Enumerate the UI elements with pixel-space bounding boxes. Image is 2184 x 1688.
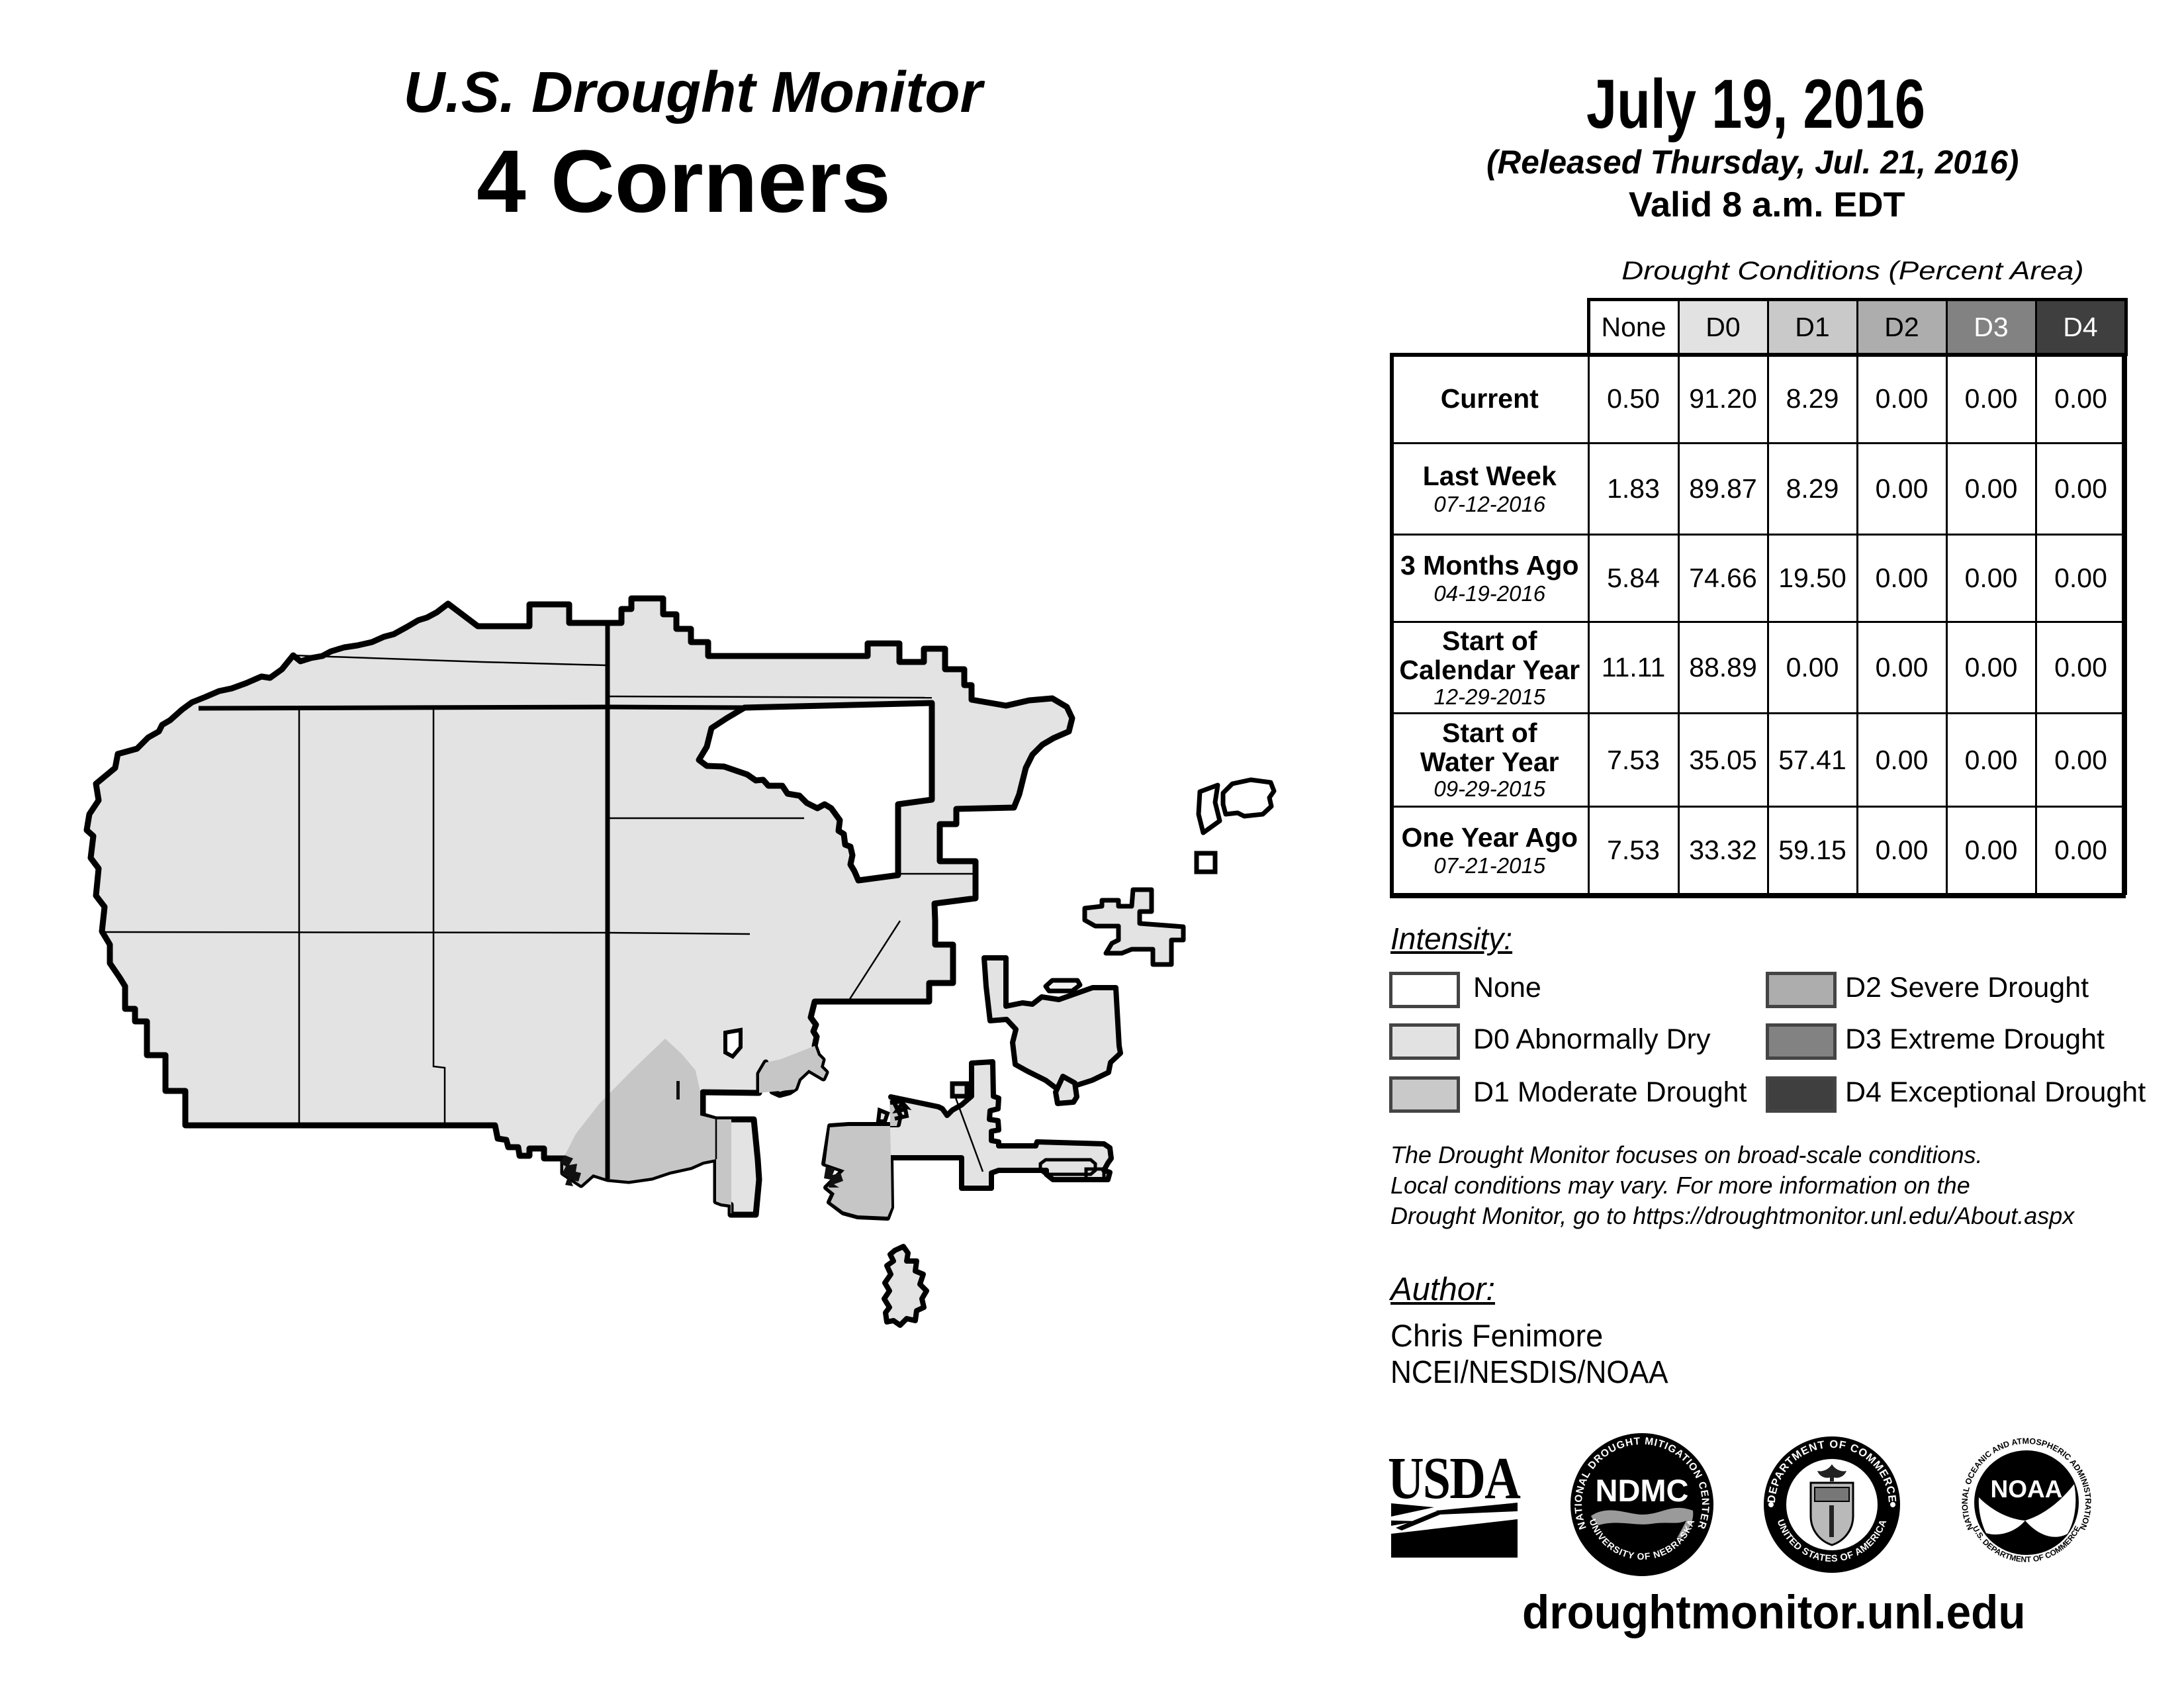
svg-text:NOAA: NOAA — [1991, 1476, 2063, 1503]
svg-text:USDA: USDA — [1388, 1445, 1521, 1511]
svg-text:NDMC: NDMC — [1596, 1473, 1689, 1508]
